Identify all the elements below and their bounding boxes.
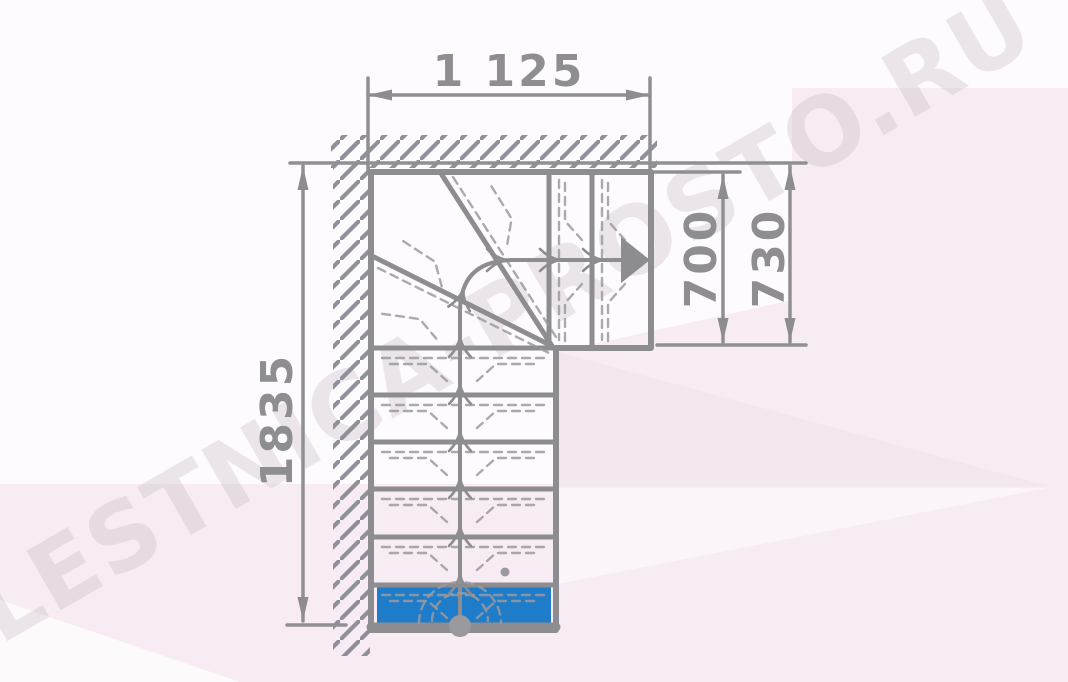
- dim-right-outer-label: 730: [744, 208, 795, 309]
- dim-right-inner-label: 700: [676, 208, 727, 309]
- wall-hatch-left: [333, 142, 370, 656]
- newel-dot: [501, 568, 510, 577]
- dim-top-width-label: 1 125: [433, 46, 586, 97]
- walk-start-dot: [449, 615, 471, 637]
- staircase-plan-page: LESTNICA-PROSTO.RU: [0, 0, 1068, 682]
- staircase-plan-drawing: LESTNICA-PROSTO.RU: [0, 0, 1068, 682]
- dim-left-height-label: 1835: [252, 353, 303, 487]
